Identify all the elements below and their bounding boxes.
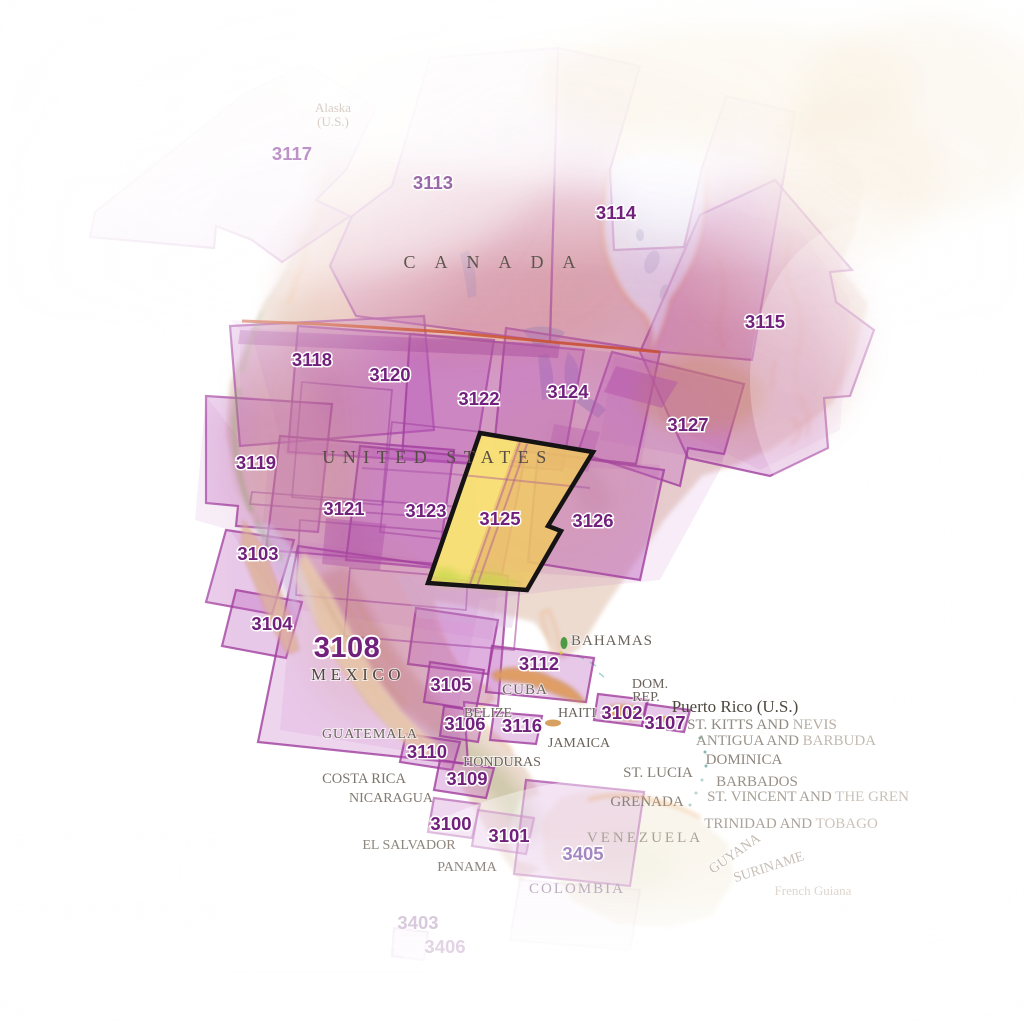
svg-text:3110: 3110 [407,741,447,762]
svg-text:3121: 3121 [323,498,364,519]
svg-text:3114: 3114 [596,202,637,223]
svg-text:3118: 3118 [292,349,332,370]
svg-text:3125: 3125 [479,508,520,529]
svg-text:3105: 3105 [430,674,471,695]
svg-text:3406: 3406 [424,936,465,957]
svg-text:JAMAICA: JAMAICA [548,736,611,751]
svg-text:BELIZE: BELIZE [464,706,512,721]
svg-text:VENEZUELA: VENEZUELA [587,830,703,846]
svg-text:HAITI: HAITI [558,706,596,721]
svg-text:3119: 3119 [236,452,276,473]
svg-text:3403: 3403 [397,912,438,933]
svg-text:3112: 3112 [519,653,559,674]
svg-text:3113: 3113 [413,172,453,193]
svg-text:BARBADOS: BARBADOS [716,774,798,790]
svg-text:NICARAGUA: NICARAGUA [349,791,434,806]
svg-text:DOMINICA: DOMINICA [706,752,783,768]
svg-text:3405: 3405 [562,843,603,864]
svg-text:(U.S.): (U.S.) [317,114,349,129]
svg-text:3100: 3100 [430,813,471,834]
svg-text:UNITED STATES: UNITED STATES [322,447,554,467]
svg-text:3101: 3101 [488,825,529,846]
svg-text:Alaska: Alaska [315,100,351,115]
svg-text:3108: 3108 [314,632,381,664]
svg-text:COSTA RICA: COSTA RICA [322,771,406,787]
svg-text:3127: 3127 [667,414,708,435]
svg-text:TRINIDAD AND TOBAGO: TRINIDAD AND TOBAGO [704,816,878,832]
svg-text:3103: 3103 [237,543,278,564]
svg-text:CANADA: CANADA [403,252,594,272]
svg-text:3115: 3115 [745,311,785,332]
svg-text:BAHAMAS: BAHAMAS [571,633,653,649]
svg-text:3122: 3122 [458,388,499,409]
svg-text:ST. LUCIA: ST. LUCIA [623,765,693,781]
svg-text:REP.: REP. [632,690,660,705]
svg-text:French Guiana: French Guiana [775,883,852,898]
svg-text:ST. KITTS AND NEVIS: ST. KITTS AND NEVIS [687,717,837,733]
svg-text:3117: 3117 [272,143,312,164]
svg-text:MEXICO: MEXICO [311,665,405,684]
svg-text:3126: 3126 [572,510,613,531]
svg-text:3120: 3120 [369,364,410,385]
svg-text:3109: 3109 [446,768,487,789]
svg-text:GUATEMALA: GUATEMALA [322,727,418,742]
svg-text:EL SALVADOR: EL SALVADOR [362,838,456,853]
svg-text:PANAMA: PANAMA [437,860,497,875]
svg-text:ANTIGUA AND BARBUDA: ANTIGUA AND BARBUDA [696,733,876,749]
svg-text:3102: 3102 [601,702,642,723]
svg-text:Puerto Rico (U.S.): Puerto Rico (U.S.) [672,697,799,716]
svg-text:CUBA: CUBA [502,682,548,698]
svg-text:HONDURAS: HONDURAS [463,755,541,770]
svg-text:ST. VINCENT AND THE GREN: ST. VINCENT AND THE GREN [707,789,909,805]
svg-text:COLOMBIA: COLOMBIA [529,881,625,897]
svg-text:3123: 3123 [405,500,446,521]
svg-text:3124: 3124 [547,381,589,402]
svg-text:3104: 3104 [251,613,293,634]
